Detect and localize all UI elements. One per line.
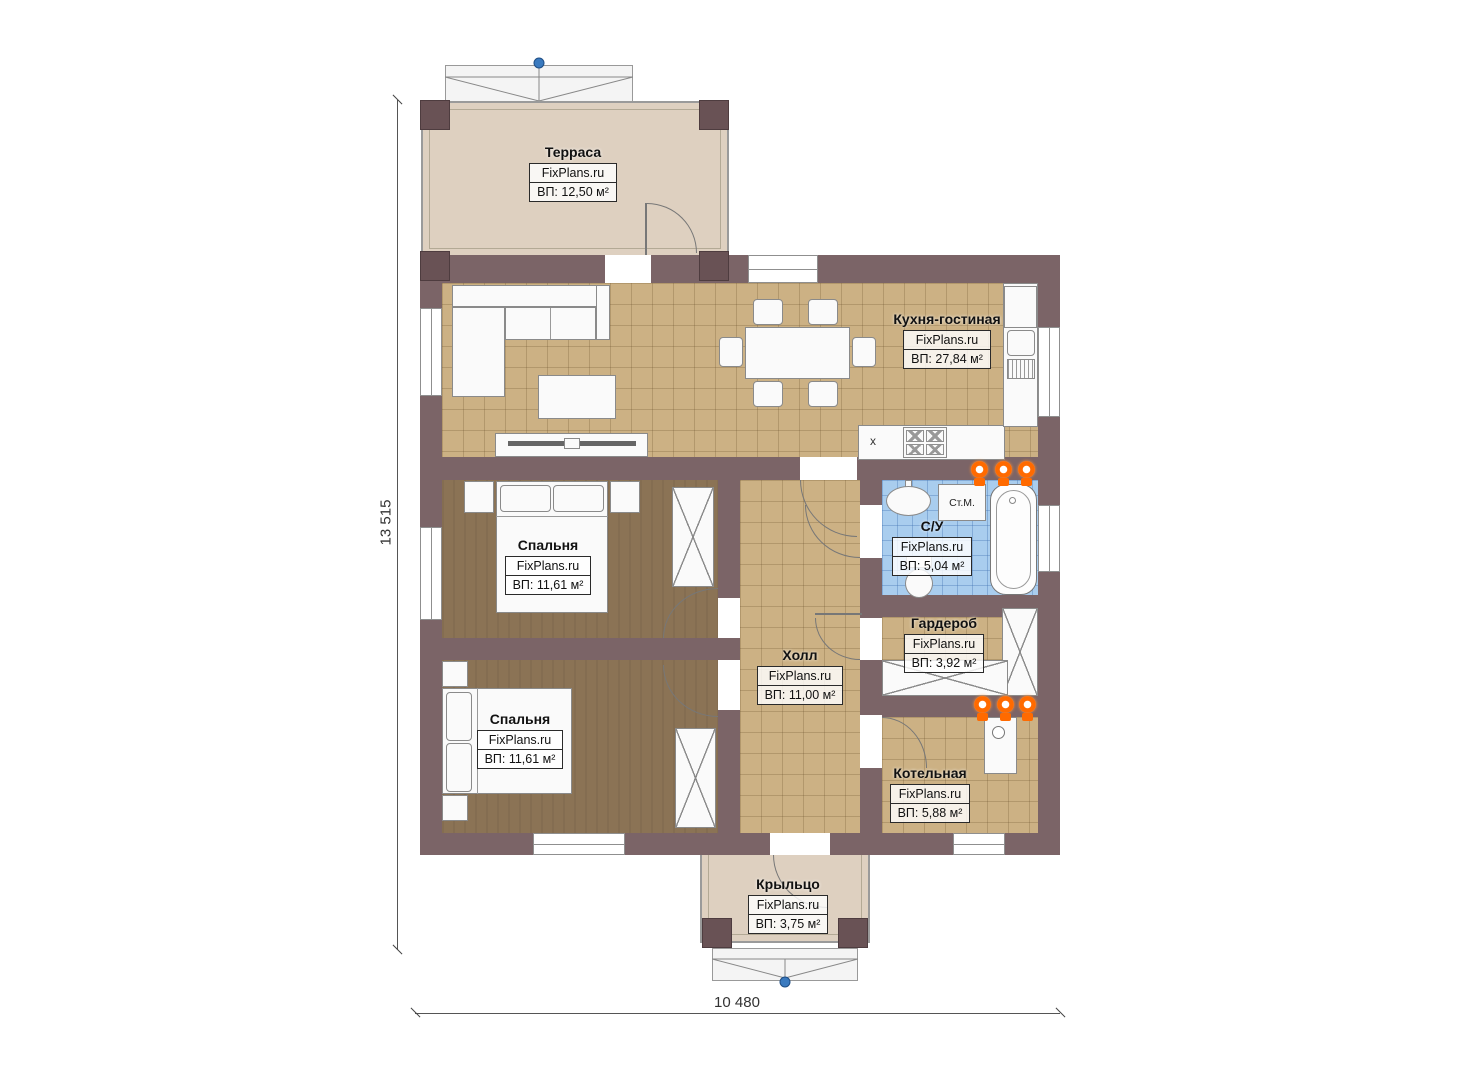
window-living-left (420, 308, 442, 396)
room-label-hall: Холл FixPlans.ru ВП: 11,00 м² (730, 647, 870, 705)
brand-label: FixPlans.ru (893, 538, 972, 556)
wall-top (420, 255, 1060, 283)
pillow (500, 485, 551, 512)
terrace-door-opening (605, 255, 651, 283)
room-label-terrace: Терраса FixPlans.ru ВП: 12,50 м² (503, 144, 643, 202)
burner-icon (906, 430, 924, 442)
room-area: ВП: 12,50 м² (530, 182, 616, 201)
room-info-box: FixPlans.ru ВП: 5,88 м² (890, 784, 971, 823)
room-area: ВП: 5,88 м² (891, 803, 970, 822)
room-info-box: FixPlans.ru ВП: 27,84 м² (903, 330, 991, 369)
room-info-box: FixPlans.ru ВП: 11,61 м² (505, 556, 592, 595)
bedroom-top-door-opening (718, 598, 740, 638)
boiler-dial (992, 726, 1005, 739)
brand-label: FixPlans.ru (891, 785, 970, 803)
room-area: ВП: 11,61 м² (506, 575, 591, 594)
terrace-steps (445, 57, 633, 103)
burner-icon (906, 444, 924, 456)
dining-chair (753, 381, 783, 407)
sofa-chaise (452, 307, 505, 397)
sink-mark: x (862, 429, 884, 453)
window-kitchen-right (1038, 327, 1060, 417)
room-area: ВП: 27,84 м² (904, 349, 990, 368)
room-label-boiler: Котельная FixPlans.ru ВП: 5,88 м² (860, 765, 1000, 823)
hall-kitchen-opening (800, 457, 857, 480)
wardrobe-closet (672, 487, 714, 587)
dimension-line-vertical (397, 100, 398, 950)
brand-label: FixPlans.ru (749, 896, 828, 914)
dining-table (745, 327, 850, 379)
sofa-seats (505, 307, 596, 340)
nightstand (442, 661, 468, 687)
nightstand (464, 481, 494, 513)
sofa-armrest (596, 285, 610, 340)
dimension-label-height: 13 515 (378, 481, 395, 565)
room-name: Холл (730, 647, 870, 663)
marker-dot (780, 977, 790, 987)
heating-pipe-icon (995, 461, 1014, 487)
room-label-kitchen-living: Кухня-гостиная FixPlans.ru ВП: 27,84 м² (877, 311, 1017, 369)
room-info-box: FixPlans.ru ВП: 11,61 м² (477, 730, 564, 769)
room-name: Кухня-гостиная (877, 311, 1017, 327)
bathroom-sink (886, 486, 931, 516)
brand-label: FixPlans.ru (530, 164, 616, 182)
floor-plan: 13 515 10 480 (0, 0, 1474, 1080)
boiler-door-opening (860, 715, 882, 768)
nightstand (442, 795, 468, 821)
terrace-door-leaf (645, 203, 647, 255)
dining-chair (808, 381, 838, 407)
heating-pipe-icon (997, 696, 1016, 722)
wall-bedroom-divider (442, 638, 740, 660)
bathtub-drain (1009, 497, 1016, 504)
window-bedroom-bottom (533, 833, 625, 855)
room-area: ВП: 5,04 м² (893, 556, 972, 575)
window-kitchen-top (748, 255, 818, 283)
sofa-back (452, 285, 610, 307)
dimension-line-horizontal (415, 1013, 1060, 1014)
room-name: С/У (862, 518, 1002, 534)
dining-chair (719, 337, 743, 367)
room-name: Спальня (450, 711, 590, 727)
brand-label: FixPlans.ru (478, 731, 563, 749)
dimension-label-width: 10 480 (695, 994, 779, 1011)
brand-label: FixPlans.ru (506, 557, 591, 575)
stove (903, 427, 947, 458)
window-bedroom-top-left (420, 527, 442, 620)
washing-machine: Ст.М. (938, 484, 986, 521)
brand-label: FixPlans.ru (905, 635, 984, 653)
porch-steps (712, 948, 858, 988)
room-info-box: FixPlans.ru ВП: 3,75 м² (748, 895, 829, 934)
room-label-bedroom-bottom: Спальня FixPlans.ru ВП: 11,61 м² (450, 711, 590, 769)
dining-chair (808, 299, 838, 325)
coffee-table (538, 375, 616, 419)
room-label-wardrobe: Гардероб FixPlans.ru ВП: 3,92 м² (874, 615, 1014, 673)
terrace-pillar (420, 251, 450, 281)
marker-dot (534, 58, 544, 68)
dining-chair (852, 337, 876, 367)
room-area: ВП: 11,61 м² (478, 749, 563, 768)
room-info-box: FixPlans.ru ВП: 11,00 м² (757, 666, 844, 705)
heating-pipe-icon (1018, 461, 1037, 487)
wardrobe-closet (675, 728, 716, 828)
nightstand (610, 481, 640, 513)
wall-bedrooms-hall (718, 457, 740, 833)
tv-mount (564, 438, 580, 449)
heating-pipe-icon (974, 696, 993, 722)
room-name: Спальня (478, 537, 618, 553)
heating-pipe-icon (1019, 696, 1038, 722)
dining-chair (753, 299, 783, 325)
room-info-box: FixPlans.ru ВП: 3,92 м² (904, 634, 985, 673)
blanket-line (496, 516, 608, 517)
room-info-box: FixPlans.ru ВП: 12,50 м² (529, 163, 617, 202)
room-name: Крыльцо (718, 876, 858, 892)
room-name: Терраса (503, 144, 643, 160)
burner-icon (926, 444, 944, 456)
wardrobe-door-leaf (815, 613, 862, 615)
entrance-door-opening (770, 833, 830, 855)
room-area: ВП: 3,92 м² (905, 653, 984, 672)
room-area: ВП: 3,75 м² (749, 914, 828, 933)
terrace-pillar (699, 251, 729, 281)
window-boiler-bottom (953, 833, 1005, 855)
brand-label: FixPlans.ru (904, 331, 990, 349)
room-name: Гардероб (874, 615, 1014, 631)
pillow (553, 485, 604, 512)
room-area: ВП: 11,00 м² (758, 685, 843, 704)
brand-label: FixPlans.ru (758, 667, 843, 685)
room-label-bathroom: С/У FixPlans.ru ВП: 5,04 м² (862, 518, 1002, 576)
burner-icon (926, 430, 944, 442)
heating-pipe-icon (971, 461, 990, 487)
room-label-porch: Крыльцо FixPlans.ru ВП: 3,75 м² (718, 876, 858, 934)
room-label-bedroom-top: Спальня FixPlans.ru ВП: 11,61 м² (478, 537, 618, 595)
terrace-pillar (699, 100, 729, 130)
window-bathroom-right (1038, 505, 1060, 572)
room-info-box: FixPlans.ru ВП: 5,04 м² (892, 537, 973, 576)
room-name: Котельная (860, 765, 1000, 781)
terrace-pillar (420, 100, 450, 130)
